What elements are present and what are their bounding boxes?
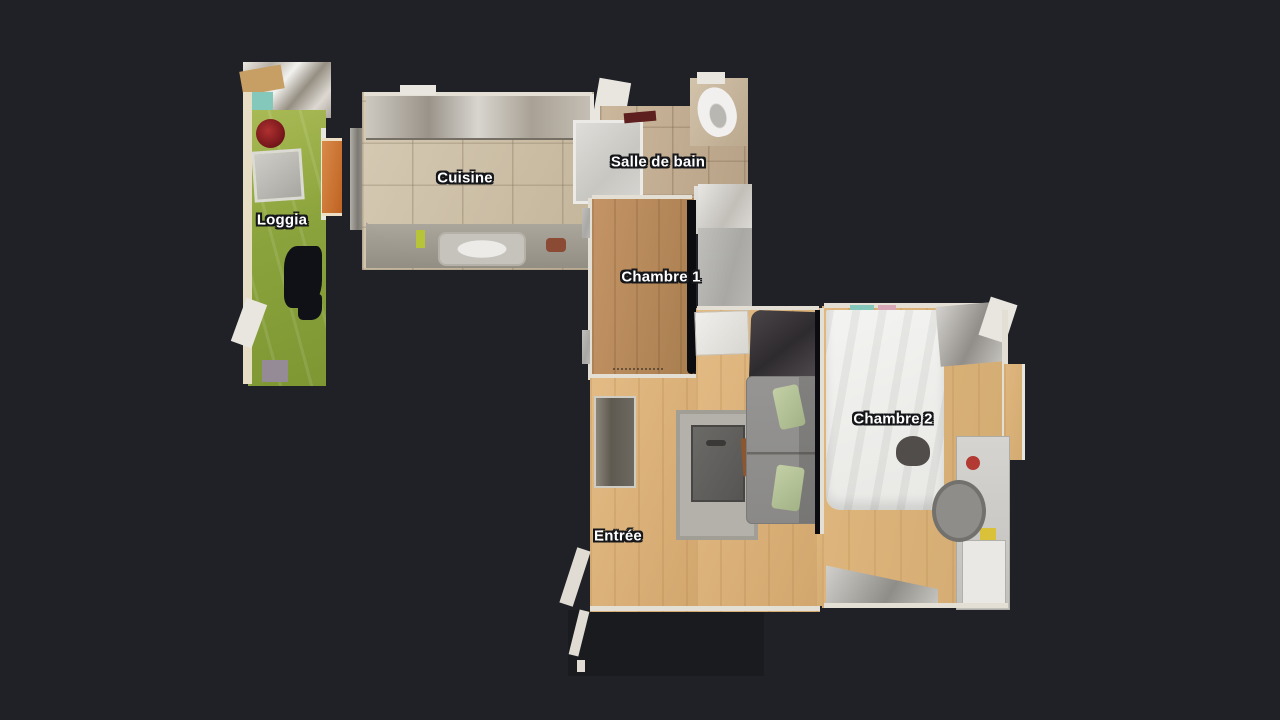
room-label-salle-de-bain: Salle de bain [611,154,705,171]
room-label-loggia: Loggia [257,212,307,229]
wall [592,195,692,199]
coffee-table-handle [706,440,726,446]
plant-pot [256,119,285,148]
kitchen-sink [438,232,526,266]
scan-debris [559,547,590,606]
loggia-door-mat [322,138,342,216]
coffee-table [691,425,745,502]
scan-debris [577,660,585,672]
wall-fragment [582,330,590,364]
sideboard [594,396,636,488]
loggia-object [262,360,288,382]
door-swing [613,368,663,370]
kitchen-object [546,238,566,252]
chambre-1-floor[interactable] [592,198,694,380]
wall-fragment [697,72,725,84]
corridor-floor[interactable] [698,228,752,312]
desk-drawers [962,540,1006,604]
wall [590,606,820,611]
kitchen-counter-top [366,96,590,140]
desk-object [966,456,980,470]
desk-object [980,528,996,540]
wall [820,308,824,534]
scan-shadow [568,610,764,676]
planter-table [251,148,304,202]
side-table [694,310,750,356]
room-label-entree: Entrée [594,528,642,545]
floor-plan-canvas: Loggia Cuisine Salle de bain Chambre 1 E… [0,0,1280,720]
scan-hole [298,294,322,320]
wall-fragment [582,208,590,238]
kitchen-wall-fragment [400,85,436,95]
desk-chair [932,480,986,542]
kitchen-bottle [416,230,425,248]
loggia-debris [251,92,273,112]
room-label-chambre-1: Chambre 1 [621,269,700,286]
corridor-appliance [698,184,752,230]
bed-object [896,436,930,466]
room-label-chambre-2: Chambre 2 [853,411,932,428]
room-label-cuisine: Cuisine [437,170,493,187]
wall [824,603,1008,608]
